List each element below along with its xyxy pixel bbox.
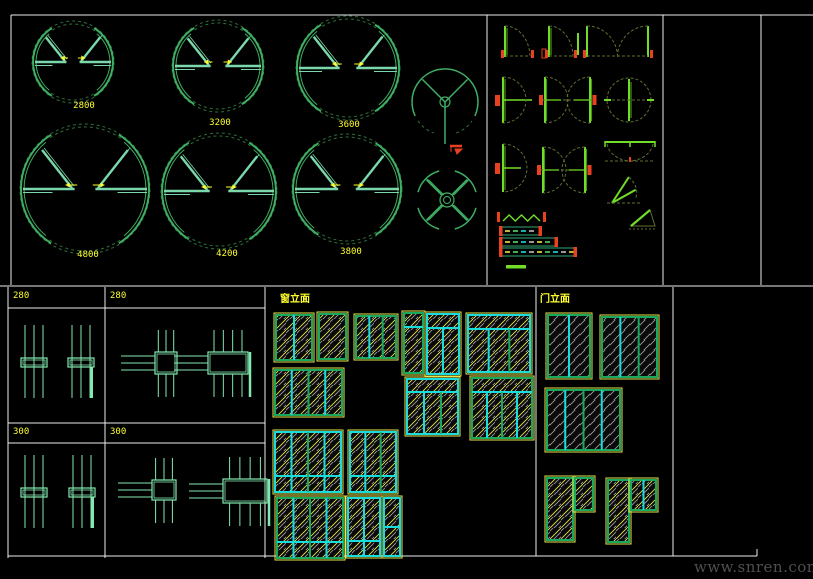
door-panel-title: 门立面: [540, 290, 570, 305]
window-elevation-7: [405, 377, 460, 436]
window-elevation-1: [274, 313, 314, 362]
window-elevation-13: [466, 313, 532, 374]
window-elevation-14: [470, 376, 534, 440]
three-wing-revolving-door: [412, 69, 478, 144]
window-elevation-3: [354, 314, 398, 360]
plan-symbol-sb: [499, 226, 542, 236]
door-elevation-panel: [545, 313, 659, 544]
window-elevation-10: [275, 496, 345, 560]
window-elevation-11: [346, 496, 382, 558]
panel-grid-lines: [0, 15, 813, 558]
revolving-door-4200: [161, 133, 277, 249]
plan-symbol-sw: [542, 26, 578, 58]
plan-symbol-sb: [499, 247, 577, 257]
revolving-door-3200: [172, 20, 264, 112]
dimension-label-4200: 4200: [216, 249, 238, 259]
revolving-door-3600: [296, 16, 400, 120]
plan-symbol-bs2: [539, 77, 597, 123]
plan-symbol-cn: [607, 177, 640, 203]
detail-header-280-left: 280: [13, 291, 29, 301]
watermark: www.snren.com: [694, 558, 813, 576]
plan-symbol-sb: [499, 237, 558, 247]
cad-sheet: 280 280 300 300 窗立面 门立面 2800320036004800…: [0, 0, 813, 579]
window-elevation-12: [382, 496, 402, 558]
plan-symbol-tr: [629, 210, 657, 229]
window-elevation-5: [425, 312, 461, 376]
plan-symbol-tl: [506, 265, 526, 269]
dimension-label-2800: 2800: [73, 101, 95, 111]
revolving-door-4800: [20, 124, 150, 254]
dimension-label-3600: 3600: [338, 120, 360, 130]
detail-header-300-right: 300: [110, 427, 126, 437]
plan-symbol-bs: [495, 77, 532, 123]
window-elevation-8: [273, 430, 343, 494]
plan-symbol-zz: [497, 212, 546, 222]
plan-symbol-sw2: [583, 26, 653, 58]
door-elevation-2: [600, 315, 659, 379]
revolving-door-panel: [20, 16, 478, 254]
four-wing-revolving-door: [418, 171, 476, 229]
window-elevation-2: [317, 312, 348, 361]
plan-symbol-bs2: [537, 147, 592, 193]
plan-symbol-sw: [501, 26, 534, 58]
door-elevation-4: [545, 476, 595, 542]
plan-symbol-rd: [605, 141, 655, 162]
door-plan-symbols-middle: [495, 26, 657, 269]
junction-details-table: [21, 325, 269, 528]
plan-symbol-cd: [604, 78, 654, 122]
window-elevation-4: [402, 311, 425, 375]
red-section-mark: [450, 146, 462, 154]
dimension-label-3800: 3800: [340, 247, 362, 257]
window-panel-title: 窗立面: [280, 290, 310, 305]
detail-header-300-left: 300: [13, 427, 29, 437]
door-elevation-1: [546, 313, 592, 379]
dimension-label-4800: 4800: [77, 250, 99, 260]
door-elevation-3: [545, 388, 622, 452]
door-elevation-5: [606, 478, 658, 544]
revolving-door-3800: [292, 134, 402, 244]
dimension-label-3200: 3200: [209, 118, 231, 128]
cad-drawing: [0, 0, 813, 579]
detail-header-280-right: 280: [110, 291, 126, 301]
window-elevation-panel: [273, 311, 534, 560]
plan-symbol-bs: [495, 144, 527, 192]
window-elevation-9: [348, 430, 398, 494]
revolving-door-2800: [32, 21, 114, 103]
window-elevation-6: [273, 368, 344, 417]
